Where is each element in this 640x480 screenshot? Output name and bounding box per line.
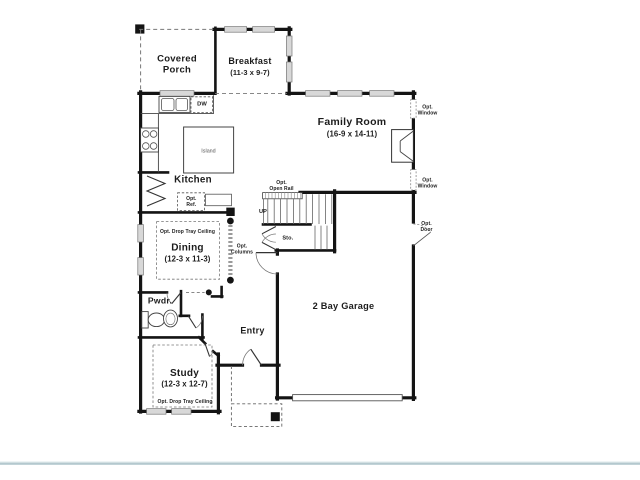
fireplace — [392, 130, 414, 163]
toilet-bowl — [148, 313, 164, 327]
opt-door-leaf — [413, 232, 430, 246]
burner — [150, 131, 157, 138]
walls — [135, 24, 415, 421]
window — [306, 91, 330, 97]
dining-dims: (12-3 x 11-3) — [165, 255, 211, 264]
entry-label: Entry — [240, 326, 264, 336]
staircase — [262, 193, 332, 250]
garage-door — [293, 395, 403, 401]
opt-open-rail-label: Opt. — [276, 180, 287, 186]
powder-fixtures — [142, 310, 178, 328]
garage-entry-door-arc — [256, 253, 277, 274]
dining-ceiling-note: Opt. Drop Tray Ceiling — [160, 229, 215, 235]
column-post — [226, 208, 234, 216]
burner — [143, 143, 150, 150]
divider-highlight — [0, 461, 640, 462]
fireplace-box — [392, 130, 414, 163]
front-door-leaf — [251, 349, 262, 365]
window — [286, 36, 292, 56]
garage-label: 2 Bay Garage — [313, 301, 375, 311]
storage-door-leaves — [262, 227, 276, 250]
opt-window-lower-label: Opt. — [422, 178, 433, 184]
study-label: Study — [170, 368, 199, 379]
covered-porch-label: Covered — [157, 54, 197, 65]
opt-open-rail-label: Open Rail — [269, 186, 294, 192]
opt-door-label: Door — [420, 227, 432, 233]
powder-door-leaf — [172, 293, 181, 304]
burner — [143, 131, 150, 138]
window — [286, 62, 292, 82]
breakfast-label: Breakfast — [228, 56, 271, 66]
column-dot — [227, 277, 234, 284]
kitchen-fixtures — [141, 95, 234, 210]
burner — [150, 143, 157, 150]
stairs-up-label: UP — [259, 209, 267, 215]
window — [172, 409, 191, 415]
kitchen-window — [160, 91, 194, 97]
window — [147, 409, 166, 415]
window — [138, 225, 144, 242]
storage-door-arcs — [262, 234, 276, 243]
pantry-shelves — [147, 176, 165, 206]
window — [253, 27, 275, 33]
opt-columns-label: Columns — [231, 250, 253, 256]
opt-window-upper — [411, 100, 416, 119]
exterior-walls — [139, 28, 415, 413]
island-label: Island — [201, 149, 215, 155]
stoop-post — [271, 412, 280, 421]
front-door-arc — [243, 349, 251, 365]
storage-label: Sto. — [282, 236, 293, 242]
column-dot — [227, 218, 234, 225]
window — [138, 258, 144, 275]
divider-line — [0, 463, 640, 465]
family-room-dims: (16-9 x 14-11) — [327, 130, 378, 139]
toilet-tank — [142, 312, 148, 328]
dishwasher-label: DW — [197, 102, 207, 108]
dining-label: Dining — [171, 243, 204, 254]
opt-columns-label: Opt. — [237, 244, 248, 250]
sink-basin — [162, 99, 175, 111]
opt-window-lower — [411, 170, 416, 190]
window — [370, 91, 394, 97]
family-room-label: Family Room — [318, 116, 387, 128]
study-dims: (12-3 x 12-7) — [161, 380, 208, 389]
counter-stub — [206, 194, 232, 206]
dashed-edges — [139, 29, 287, 426]
powder-sink — [164, 310, 178, 327]
page-divider — [0, 461, 640, 464]
study-ceiling-note: Opt. Drop Tray Ceiling — [158, 399, 213, 405]
stair-treads-lower — [315, 226, 327, 250]
opt-ref-label: Opt. — [186, 196, 197, 202]
study-door-arc — [210, 351, 214, 356]
opt-door-label: Opt. — [421, 221, 432, 227]
opt-ref-label: Ref. — [186, 202, 196, 208]
opt-window-upper-label: Window — [418, 111, 438, 117]
window — [338, 91, 362, 97]
kitchen-label: Kitchen — [174, 175, 212, 186]
floor-plan-drawing: Covered Porch Breakfast (11-3 x 9-7) Fam… — [0, 0, 640, 480]
window — [225, 27, 247, 33]
covered-porch-label: Porch — [163, 65, 191, 76]
floor-plan-page: Covered Porch Breakfast (11-3 x 9-7) Fam… — [0, 0, 640, 480]
column-dot — [206, 289, 212, 295]
powder-label: Pwdr. — [148, 296, 172, 306]
breakfast-dims: (11-3 x 9-7) — [230, 68, 270, 77]
opt-window-lower-label: Window — [418, 184, 438, 190]
opt-window-upper-label: Opt. — [422, 105, 433, 111]
sink-basin — [176, 99, 188, 111]
closet-door-leaf — [188, 316, 196, 328]
